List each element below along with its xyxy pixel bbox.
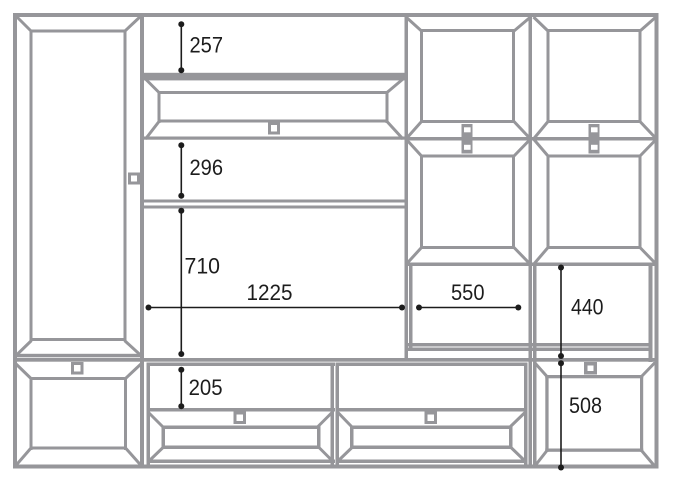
svg-text:205: 205 <box>189 375 223 400</box>
svg-text:1225: 1225 <box>247 280 293 305</box>
svg-text:440: 440 <box>571 295 604 320</box>
svg-text:508: 508 <box>569 393 602 418</box>
svg-text:710: 710 <box>185 254 221 279</box>
svg-text:550: 550 <box>451 280 485 305</box>
svg-text:296: 296 <box>190 155 224 180</box>
svg-text:257: 257 <box>190 33 224 58</box>
